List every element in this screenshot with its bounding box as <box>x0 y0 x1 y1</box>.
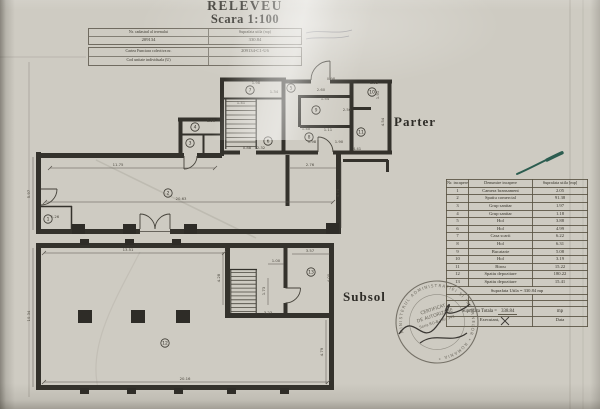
wall-segment <box>39 246 332 388</box>
room-number-badge <box>312 106 320 114</box>
cadastral-number-label: Nr. cadastral al terenului <box>89 29 209 37</box>
room-number-text: 5 <box>290 86 293 92</box>
signature-stroke <box>420 333 467 343</box>
door-arc <box>286 288 301 303</box>
dimension-label: 3.23 <box>264 310 273 315</box>
room-number-text: 2 <box>167 191 170 197</box>
room-row: 12Spatiu depozitare180.22 <box>447 271 588 279</box>
pillar-nub <box>127 388 136 394</box>
room-area: 5.08 <box>533 248 588 256</box>
pillar-nub <box>125 239 134 245</box>
parter-plan-walls <box>33 61 392 234</box>
room-area: 6.22 <box>533 233 588 241</box>
wall-segment <box>343 160 388 172</box>
room-area: 15.22 <box>533 263 588 271</box>
door-arc <box>155 214 170 229</box>
room-number-text: 1 <box>47 217 50 223</box>
cadastral-number-value: 209134 <box>89 37 209 44</box>
pillar-nub <box>174 388 183 394</box>
room-area: 3.19 <box>533 256 588 264</box>
room-number: 10 <box>447 256 469 264</box>
grand-total-value: 338.84 <box>498 309 517 315</box>
header-room-area: Suprafata utila [mp] <box>533 180 588 188</box>
dimension-label: 1.54 <box>321 96 330 101</box>
room-number-badge <box>246 86 254 94</box>
room-number: 1 <box>447 187 469 195</box>
header-room-name: Denumire incapere <box>469 180 533 188</box>
executant-label: Executant, <box>447 317 533 327</box>
room-number: 6 <box>447 225 469 233</box>
wall-segment <box>41 206 72 231</box>
dimension-label: 4.41 <box>353 146 362 151</box>
stair-rail <box>226 99 256 149</box>
grand-total-unit: mp <box>533 307 588 317</box>
room-area: 2.05 <box>533 187 588 195</box>
room-number-text: 9 <box>315 108 318 114</box>
wall-segment <box>181 135 221 156</box>
room-name: Camera bransament <box>469 187 533 195</box>
pillar-nub <box>172 239 181 245</box>
pillars <box>78 239 289 394</box>
subsol-annotations: 121313.5120.1610.344.793.574.001.001.733… <box>26 247 331 381</box>
pillar <box>72 224 85 234</box>
dimension-label: 4.00 <box>326 273 331 282</box>
room-number-badge <box>161 339 169 347</box>
room-areas-table-grid: Nr. incapere Denumire incapere Suprafata… <box>446 179 588 327</box>
room-name: Hol <box>469 225 533 233</box>
pillar <box>184 224 197 234</box>
room-name: Hol <box>469 218 533 226</box>
door-arc <box>318 137 333 152</box>
room-number-text: 7 <box>249 88 252 94</box>
useful-area-total: Suprafata Utila = 330.84 mp <box>447 286 588 294</box>
room-row: 8Hol6.31 <box>447 240 588 248</box>
dimension-label: 4.79 <box>319 347 324 356</box>
dimension-label: 1.26 <box>51 214 60 219</box>
wrinkle-line <box>96 160 256 238</box>
room-name: Spatiu comercial <box>469 195 533 203</box>
room-number: 4 <box>447 210 469 218</box>
room-row: 6Hol4.99 <box>447 225 588 233</box>
room-row: 4Grup sanitar1.18 <box>447 210 588 218</box>
wall-segment <box>298 96 371 127</box>
dimension-line <box>33 248 330 387</box>
room-number-text: 13 <box>308 270 314 276</box>
pillar <box>131 310 145 323</box>
pillar <box>326 223 339 234</box>
dimension-label: 2.76 <box>306 162 315 167</box>
room-number: 13 <box>447 278 469 286</box>
stamp-line: CERTIFICAT <box>420 303 447 317</box>
room-area: 91.38 <box>533 195 588 203</box>
room-number-text: 11 <box>358 130 364 136</box>
dimension-label: 1.11 <box>324 127 333 132</box>
room-area: 3.88 <box>533 218 588 226</box>
unit-code-label: Cod unitate individuala (U) <box>89 57 209 66</box>
handwriting-marks <box>306 30 352 39</box>
dimension-line <box>33 157 341 230</box>
land-registry-value: 209134-C1-U6 <box>209 48 301 57</box>
scanned-document-page: RELEVEU Scara 1:100 Nr. cadastral al ter… <box>0 0 600 409</box>
pillars <box>72 223 339 234</box>
room-number-text: 6 <box>267 139 270 145</box>
pillar-nub <box>80 239 89 245</box>
stair-treads <box>231 273 256 312</box>
room-number: 3 <box>447 202 469 210</box>
room-name: Bucatarie <box>469 248 533 256</box>
room-number-text: 12 <box>162 341 168 347</box>
dimension-label: 1.50 <box>207 118 216 123</box>
room-name: Spatiu depozitare <box>469 278 533 286</box>
room-areas-table: Nr. incapere Denumire incapere Suprafata… <box>446 179 587 327</box>
executant-row: Executant, Data <box>447 317 588 327</box>
door-arc <box>140 214 155 229</box>
stair-treads <box>226 102 256 147</box>
room-number-text: 3 <box>189 141 192 147</box>
room-row: 3Grup sanitar1.97 <box>447 202 588 210</box>
handwriting-line <box>306 36 349 39</box>
room-name: Birou <box>469 263 533 271</box>
dimension-lines <box>33 157 341 230</box>
room-number-badge <box>186 139 194 147</box>
ground-floor-label: Parter <box>394 114 436 130</box>
room-number: 2 <box>447 195 469 203</box>
dimension-label: 3.57 <box>306 248 315 253</box>
dimension-label: 1.98 <box>308 139 317 144</box>
dimension-label: 1.52 <box>370 80 379 85</box>
room-row: 10Hol3.19 <box>447 256 588 264</box>
wall-segment <box>220 78 286 152</box>
pen-stroke <box>517 153 561 174</box>
room-rows: 1Camera bransament2.052Spatiu comercial9… <box>447 187 588 286</box>
room-row: 7Casa scarii6.22 <box>447 233 588 241</box>
room-number: 5 <box>447 218 469 226</box>
room-row: 9Bucatarie5.08 <box>447 248 588 256</box>
dimension-label: 11.75 <box>113 162 124 167</box>
dimension-label: 4.54 <box>380 117 385 126</box>
pen-check-mark <box>517 153 562 174</box>
dimension-label: 1.00 <box>272 258 281 263</box>
date-label: Data <box>533 317 588 327</box>
stair-rail <box>231 270 256 314</box>
basement-label: Subsol <box>343 289 386 305</box>
dimension-label: 1.90 <box>335 139 344 144</box>
door-arcs <box>41 61 333 229</box>
unit-code-empty <box>209 57 301 66</box>
dimension-ticks <box>43 166 335 204</box>
header-room-number: Nr. incapere <box>447 180 469 188</box>
cadastral-header-table: Nr. cadastral al terenului Suprafata uti… <box>88 28 302 66</box>
room-name: Grup sanitar <box>469 210 533 218</box>
useful-area-total-row: Suprafata Utila = 330.84 mp <box>447 286 588 294</box>
room-number: 11 <box>447 263 469 271</box>
room-area: 1.97 <box>533 202 588 210</box>
cadastral-box-top: Nr. cadastral al terenului Suprafata uti… <box>88 28 302 45</box>
room-row: 13Spatiu depozitare15.41 <box>447 278 588 286</box>
room-name: Casa scarii <box>469 233 533 241</box>
room-number-badge <box>44 215 52 223</box>
grand-total-label: Suprafata Totala = <box>462 309 497 314</box>
useful-area-value: 330.84 <box>209 37 301 44</box>
pillar-nub <box>280 388 289 394</box>
room-row: 11Birou15.22 <box>447 263 588 271</box>
dimension-label: 1.34 <box>270 89 279 94</box>
handwriting-line <box>306 30 352 33</box>
pillar <box>176 310 190 323</box>
room-row: 2Spatiu comercial91.38 <box>447 195 588 203</box>
pillar-nub <box>80 388 89 394</box>
pillar <box>78 310 92 323</box>
dimension-label: 13.51 <box>123 247 134 252</box>
room-number-badge <box>191 123 199 131</box>
room-number-text: 8 <box>308 135 311 141</box>
dimension-lines <box>33 248 330 387</box>
room-name: Hol <box>469 240 533 248</box>
room-number: 8 <box>447 240 469 248</box>
room-number: 7 <box>447 233 469 241</box>
room-number-badge <box>307 268 315 276</box>
room-number-badge <box>368 88 376 96</box>
dimension-label: 4.70 <box>335 188 340 197</box>
parter-annotations: 123456789101111.7520.635.971.261.981.341… <box>26 76 385 223</box>
room-row: 5Hol3.88 <box>447 218 588 226</box>
room-row: 1Camera bransament2.05 <box>447 187 588 195</box>
room-area: 6.31 <box>533 240 588 248</box>
dimension-label: 2.32 <box>257 145 266 150</box>
room-name: Spatiu depozitare <box>469 271 533 279</box>
room-area: 4.99 <box>533 225 588 233</box>
room-name: Hol <box>469 256 533 264</box>
room-number-badge <box>164 189 172 197</box>
room-number: 12 <box>447 271 469 279</box>
dimension-label: 4.28 <box>216 273 221 282</box>
wall-segment <box>228 248 332 318</box>
dimension-ticks <box>42 251 330 384</box>
pen-stroke <box>547 153 562 160</box>
room-area: 1.18 <box>533 210 588 218</box>
room-area: 180.22 <box>533 271 588 279</box>
dimension-label: 5.97 <box>26 189 31 198</box>
room-number: 9 <box>447 248 469 256</box>
grand-total-cell: Suprafata Totala = 338.84 <box>447 307 533 317</box>
door-arc <box>41 189 57 205</box>
room-number-text: 10 <box>369 90 375 96</box>
document-scale: Scara 1:100 <box>175 12 315 27</box>
dimension-label: 2.50 <box>343 107 352 112</box>
room-number-badge <box>305 133 313 141</box>
room-name: Grup sanitar <box>469 202 533 210</box>
room-number-badge <box>357 128 365 136</box>
room-number-badge <box>287 84 295 92</box>
room-number-text: 4 <box>194 125 197 131</box>
cadastral-box-bottom: Cartea Funciara colectiva nr. 209134-C1-… <box>88 47 302 66</box>
pillar <box>123 224 136 234</box>
dimension-label: 1.73 <box>261 286 266 295</box>
dimension-label: 1.40 <box>302 126 311 131</box>
pillar-nub <box>227 388 236 394</box>
useful-area-label: Suprafata utila (mp) <box>209 29 301 37</box>
subsol-plan-walls <box>33 239 332 394</box>
door-arc <box>184 156 197 169</box>
room-area: 15.41 <box>533 278 588 286</box>
dimension-label: 0.98 <box>327 76 336 81</box>
dimension-label: 20.16 <box>180 376 191 381</box>
room-number-badge <box>264 137 272 145</box>
dimension-label: 1.41 <box>237 100 246 105</box>
wrinkle-line <box>96 252 140 388</box>
dimension-label: 2.60 <box>317 87 326 92</box>
dimension-label: 1.91 <box>375 90 380 99</box>
dimension-label: 0.88 <box>243 145 252 150</box>
wall-segment <box>178 78 224 156</box>
land-registry-label: Cartea Funciara colectiva nr. <box>89 48 209 57</box>
dimension-label: 20.63 <box>176 196 187 201</box>
grand-total-row: Suprafata Totala = 338.84 mp <box>447 307 588 317</box>
dimension-label: 1.98 <box>252 80 261 85</box>
dimension-label: 10.34 <box>26 310 31 321</box>
door-arc <box>311 61 330 80</box>
table-header-row: Nr. incapere Denumire incapere Suprafata… <box>447 180 588 188</box>
